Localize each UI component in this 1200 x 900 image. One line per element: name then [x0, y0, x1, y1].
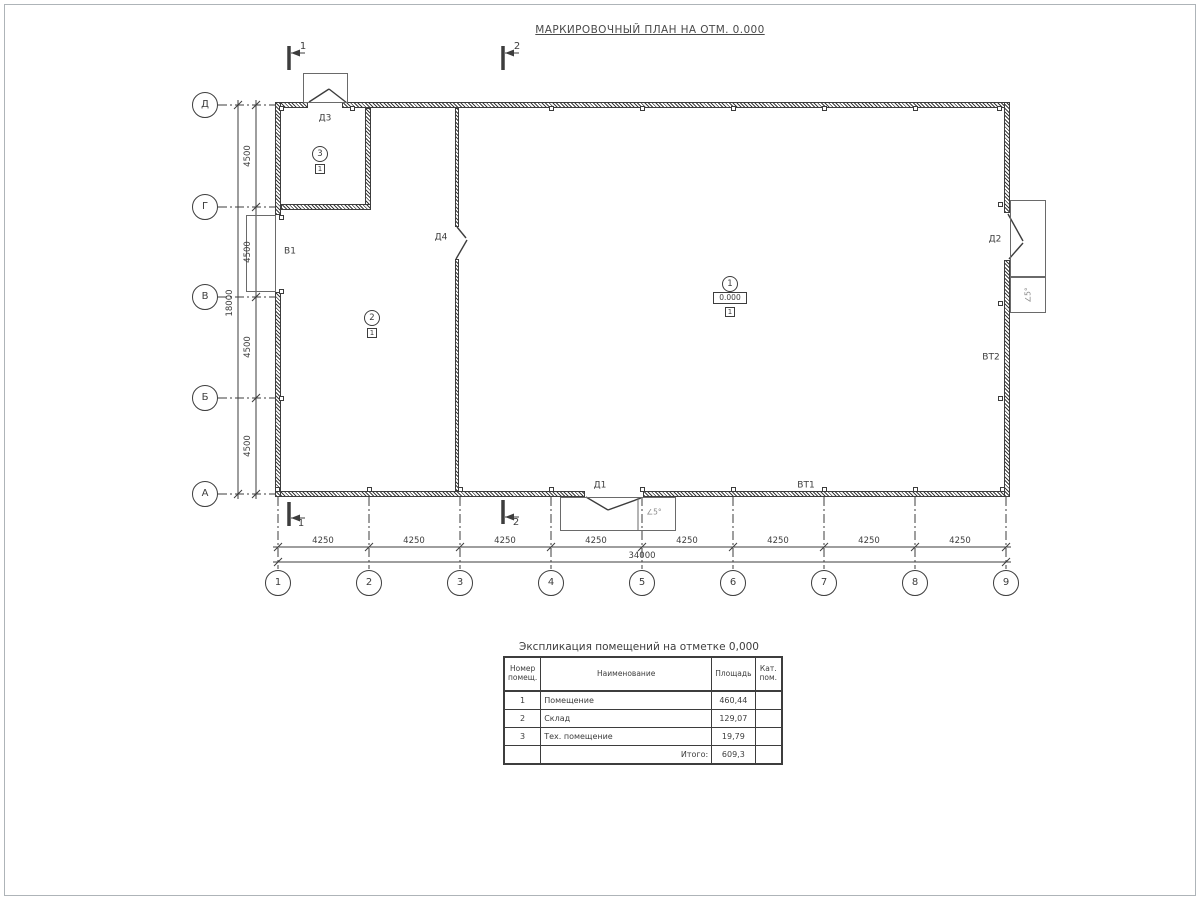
axis-col-4: 4 — [538, 570, 564, 596]
room-number: 2 — [504, 710, 541, 728]
column-tick — [822, 106, 827, 111]
room-1-floor-type: 1 — [725, 307, 735, 317]
dim-col-6: 4250 — [767, 537, 789, 546]
door-label-d1: Д1 — [594, 482, 607, 491]
axis-col-2: 2 — [356, 570, 382, 596]
gate-label-v1: В1 — [284, 248, 296, 257]
room-1-number: 1 — [722, 276, 738, 292]
drawing-title: МАРКИРОВОЧНЫЙ ПЛАН НА ОТМ. 0.000 — [535, 24, 764, 36]
dim-col-2: 4250 — [403, 537, 425, 546]
column-tick — [998, 396, 1003, 401]
column-tick — [350, 106, 355, 111]
room-category — [755, 691, 782, 710]
gate-label-vt1: ВТ1 — [797, 482, 814, 491]
column-tick — [279, 396, 284, 401]
axis-col-5: 5 — [629, 570, 655, 596]
partition-room3-horizontal — [281, 204, 371, 210]
dim-col-1: 4250 — [312, 537, 334, 546]
axis-col-9: 9 — [993, 570, 1019, 596]
column-tick — [913, 106, 918, 111]
room-name: Тех. помещение — [541, 728, 712, 746]
column-tick — [367, 487, 372, 492]
room-2-floor-type: 1 — [367, 328, 377, 338]
table-row: 1 Помещение 460,44 — [504, 691, 782, 710]
dim-row-3: 4500 — [244, 336, 253, 358]
partition-main-upper — [455, 108, 459, 227]
drawing-sheet: МАРКИРОВОЧНЫЙ ПЛАН НА ОТМ. 0.000 — [0, 0, 1200, 900]
axis-row-b: Б — [192, 385, 218, 411]
room-3-number: 3 — [312, 146, 328, 162]
section-1-top: 1 — [300, 42, 306, 52]
column-tick — [549, 106, 554, 111]
wall-bottom-left — [276, 491, 585, 497]
column-tick — [998, 301, 1003, 306]
room-name: Помещение — [541, 691, 712, 710]
total-area: 609,3 — [712, 746, 755, 765]
dim-row-2: 4500 — [244, 241, 253, 263]
column-tick — [458, 487, 463, 492]
column-tick — [731, 487, 736, 492]
door-label-d3: Д3 — [319, 115, 332, 124]
section-2-bottom: 2 — [513, 518, 519, 528]
wall-left-upper — [275, 102, 281, 215]
room-number: 1 — [504, 691, 541, 710]
dim-col-7: 4250 — [858, 537, 880, 546]
dim-col-total: 34000 — [628, 552, 655, 561]
column-tick — [279, 215, 284, 220]
column-tick — [822, 487, 827, 492]
door-label-d4: Д4 — [435, 234, 448, 243]
dim-col-4: 4250 — [585, 537, 607, 546]
axis-col-1: 1 — [265, 570, 291, 596]
column-tick — [275, 487, 280, 492]
total-label: Итого: — [541, 746, 712, 765]
partition-room3-vertical — [365, 108, 371, 210]
axis-col-7: 7 — [811, 570, 837, 596]
dim-col-5: 4250 — [676, 537, 698, 546]
table-row: 3 Тех. помещение 19,79 — [504, 728, 782, 746]
header-name: Наименование — [541, 657, 712, 691]
header-area: Площадь — [712, 657, 755, 691]
slope-annotation-d1: ∠5° — [646, 508, 661, 516]
section-1-bottom: 1 — [298, 519, 304, 529]
room-category — [755, 728, 782, 746]
column-tick — [640, 106, 645, 111]
header-category: Кат. пом. — [755, 657, 782, 691]
room-area: 129,07 — [712, 710, 755, 728]
total-category-cell — [755, 746, 782, 765]
slope-annotation-d2: ∠5° — [1024, 287, 1032, 302]
room-1-elevation: 0.000 — [713, 292, 747, 304]
axis-col-3: 3 — [447, 570, 473, 596]
room-2-number: 2 — [364, 310, 380, 326]
room-3-floor-type: 1 — [315, 164, 325, 174]
wall-right-upper — [1004, 102, 1010, 213]
table-header-row: Номер помещ. Наименование Площадь Кат. п… — [504, 657, 782, 691]
column-tick — [1000, 487, 1005, 492]
room-number: 3 — [504, 728, 541, 746]
column-tick — [998, 202, 1003, 207]
axis-row-d: Д — [192, 92, 218, 118]
room-name: Склад — [541, 710, 712, 728]
total-empty-cell — [504, 746, 541, 765]
porch-d2-upper — [1010, 200, 1046, 277]
porch-d3 — [303, 73, 348, 103]
column-tick — [279, 289, 284, 294]
column-tick — [279, 106, 284, 111]
column-tick — [549, 487, 554, 492]
room-category — [755, 710, 782, 728]
dim-col-3: 4250 — [494, 537, 516, 546]
dim-row-total: 18000 — [226, 289, 235, 316]
room-area: 460,44 — [712, 691, 755, 710]
column-tick — [913, 487, 918, 492]
axis-col-8: 8 — [902, 570, 928, 596]
axis-row-a: А — [192, 481, 218, 507]
dim-row-4: 4500 — [244, 435, 253, 457]
table-row: 2 Склад 129,07 — [504, 710, 782, 728]
section-2-top: 2 — [514, 42, 520, 52]
column-tick — [731, 106, 736, 111]
partition-main-lower — [455, 259, 459, 491]
axis-row-v: В — [192, 284, 218, 310]
explication-title: Экспликация помещений на отметке 0,000 — [519, 641, 759, 653]
axis-col-6: 6 — [720, 570, 746, 596]
axis-row-g: Г — [192, 194, 218, 220]
table-total-row: Итого: 609,3 — [504, 746, 782, 765]
column-tick — [640, 487, 645, 492]
wall-top-right — [342, 102, 1010, 108]
wall-left-lower — [275, 292, 281, 497]
gate-label-vt2: ВТ2 — [982, 354, 999, 363]
room-area: 19,79 — [712, 728, 755, 746]
column-tick — [997, 106, 1002, 111]
explication-table: Номер помещ. Наименование Площадь Кат. п… — [503, 656, 783, 765]
dim-row-1: 4500 — [244, 145, 253, 167]
header-number: Номер помещ. — [504, 657, 541, 691]
door-label-d2: Д2 — [989, 236, 1002, 245]
dim-col-8: 4250 — [949, 537, 971, 546]
